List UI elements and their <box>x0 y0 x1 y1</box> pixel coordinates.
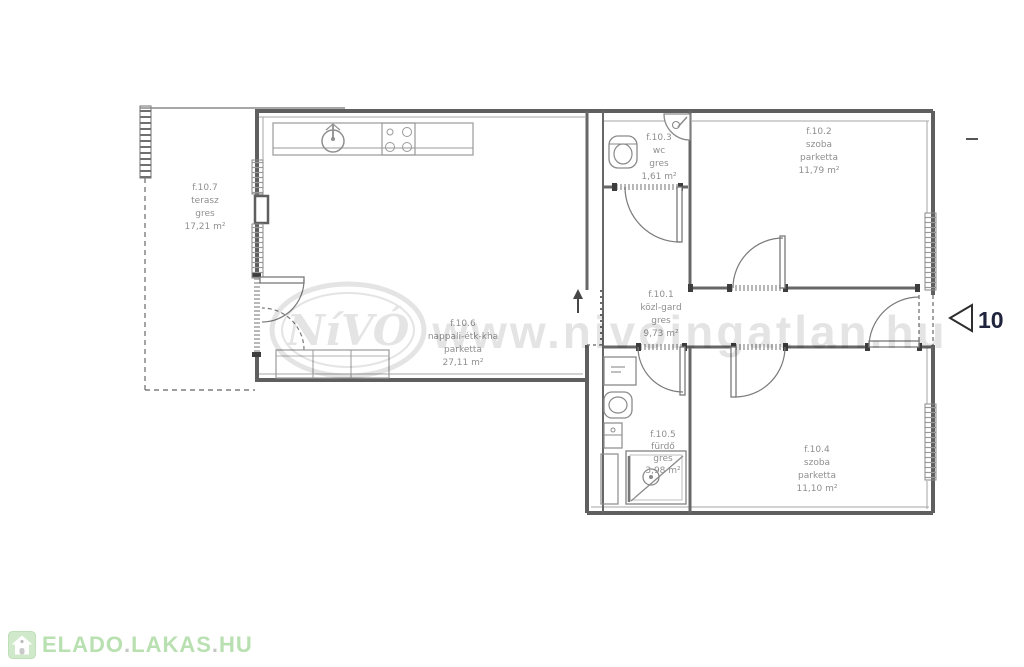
room-label-f10-3: f.10.3 wc gres 1,61 m² <box>641 133 677 182</box>
kitchen-counter <box>273 123 473 155</box>
svg-text:gres: gres <box>195 209 215 219</box>
room-label-f10-2: f.10.2 szoba parketta 11,79 m² <box>798 127 839 176</box>
svg-text:gres: gres <box>649 159 669 169</box>
svg-text:parketta: parketta <box>798 471 836 481</box>
floor-plan-page: f.10.7 terasz gres 17,21 m² f.10.6 nappa… <box>0 0 1024 667</box>
watermark-logo: NíVÓ <box>285 305 410 355</box>
floor-plan-drawing: f.10.7 terasz gres 17,21 m² f.10.6 nappa… <box>0 0 1024 667</box>
wall-pier <box>255 196 268 223</box>
washing-machine-icon <box>604 357 636 385</box>
brand-dot: . <box>212 632 219 657</box>
room-label-f10-7: f.10.7 terasz gres 17,21 m² <box>184 183 225 232</box>
svg-text:f.10.5: f.10.5 <box>650 430 675 440</box>
svg-text:3,98 m²: 3,98 m² <box>645 466 681 476</box>
svg-text:11,79 m²: 11,79 m² <box>798 166 839 176</box>
svg-text:f.10.1: f.10.1 <box>648 290 673 300</box>
svg-text:f.10.4: f.10.4 <box>804 445 830 455</box>
house-icon <box>8 631 36 659</box>
watermark-url: www.nivoingatlan.hu <box>431 306 947 358</box>
site-logo: ELADO.LAKAS.HU <box>8 631 253 659</box>
svg-text:27,11 m²: 27,11 m² <box>442 358 483 368</box>
svg-text:17,21 m²: 17,21 m² <box>184 222 225 232</box>
entry-marker-number: 10 <box>978 307 1004 333</box>
brand-part: LAKAS <box>131 632 212 657</box>
svg-text:fürdő: fürdő <box>651 442 675 452</box>
watermark: NíVÓ www.nivoingatlan.hu <box>272 284 948 376</box>
svg-text:f.10.7: f.10.7 <box>192 183 217 193</box>
brand-part: ELADO <box>42 632 124 657</box>
svg-text:11,10 m²: 11,10 m² <box>796 484 837 494</box>
room-label-f10-4: f.10.4 szoba parketta 11,10 m² <box>796 445 837 494</box>
brand-part: HU <box>219 632 253 657</box>
stove-icon <box>382 123 415 155</box>
svg-text:f.10.3: f.10.3 <box>646 133 671 143</box>
toilet2-icon <box>604 392 632 418</box>
triangle-left-icon <box>950 305 972 331</box>
toilet-icon <box>609 136 637 168</box>
svg-text:wc: wc <box>653 146 665 156</box>
room-label-f10-5: f.10.5 fürdő gres 3,98 m² <box>645 430 681 476</box>
svg-text:gres: gres <box>653 454 673 464</box>
site-logo-text: ELADO.LAKAS.HU <box>42 631 253 659</box>
svg-text:szoba: szoba <box>804 458 830 468</box>
svg-text:1,61 m²: 1,61 m² <box>641 172 677 182</box>
doors <box>260 187 919 397</box>
bidet-cabinet-icon <box>604 423 622 448</box>
svg-text:f.10.2: f.10.2 <box>806 127 831 137</box>
svg-text:terasz: terasz <box>191 196 219 206</box>
svg-text:szoba: szoba <box>806 140 832 150</box>
entry-marker: 10 <box>950 139 1004 333</box>
svg-text:parketta: parketta <box>800 153 838 163</box>
